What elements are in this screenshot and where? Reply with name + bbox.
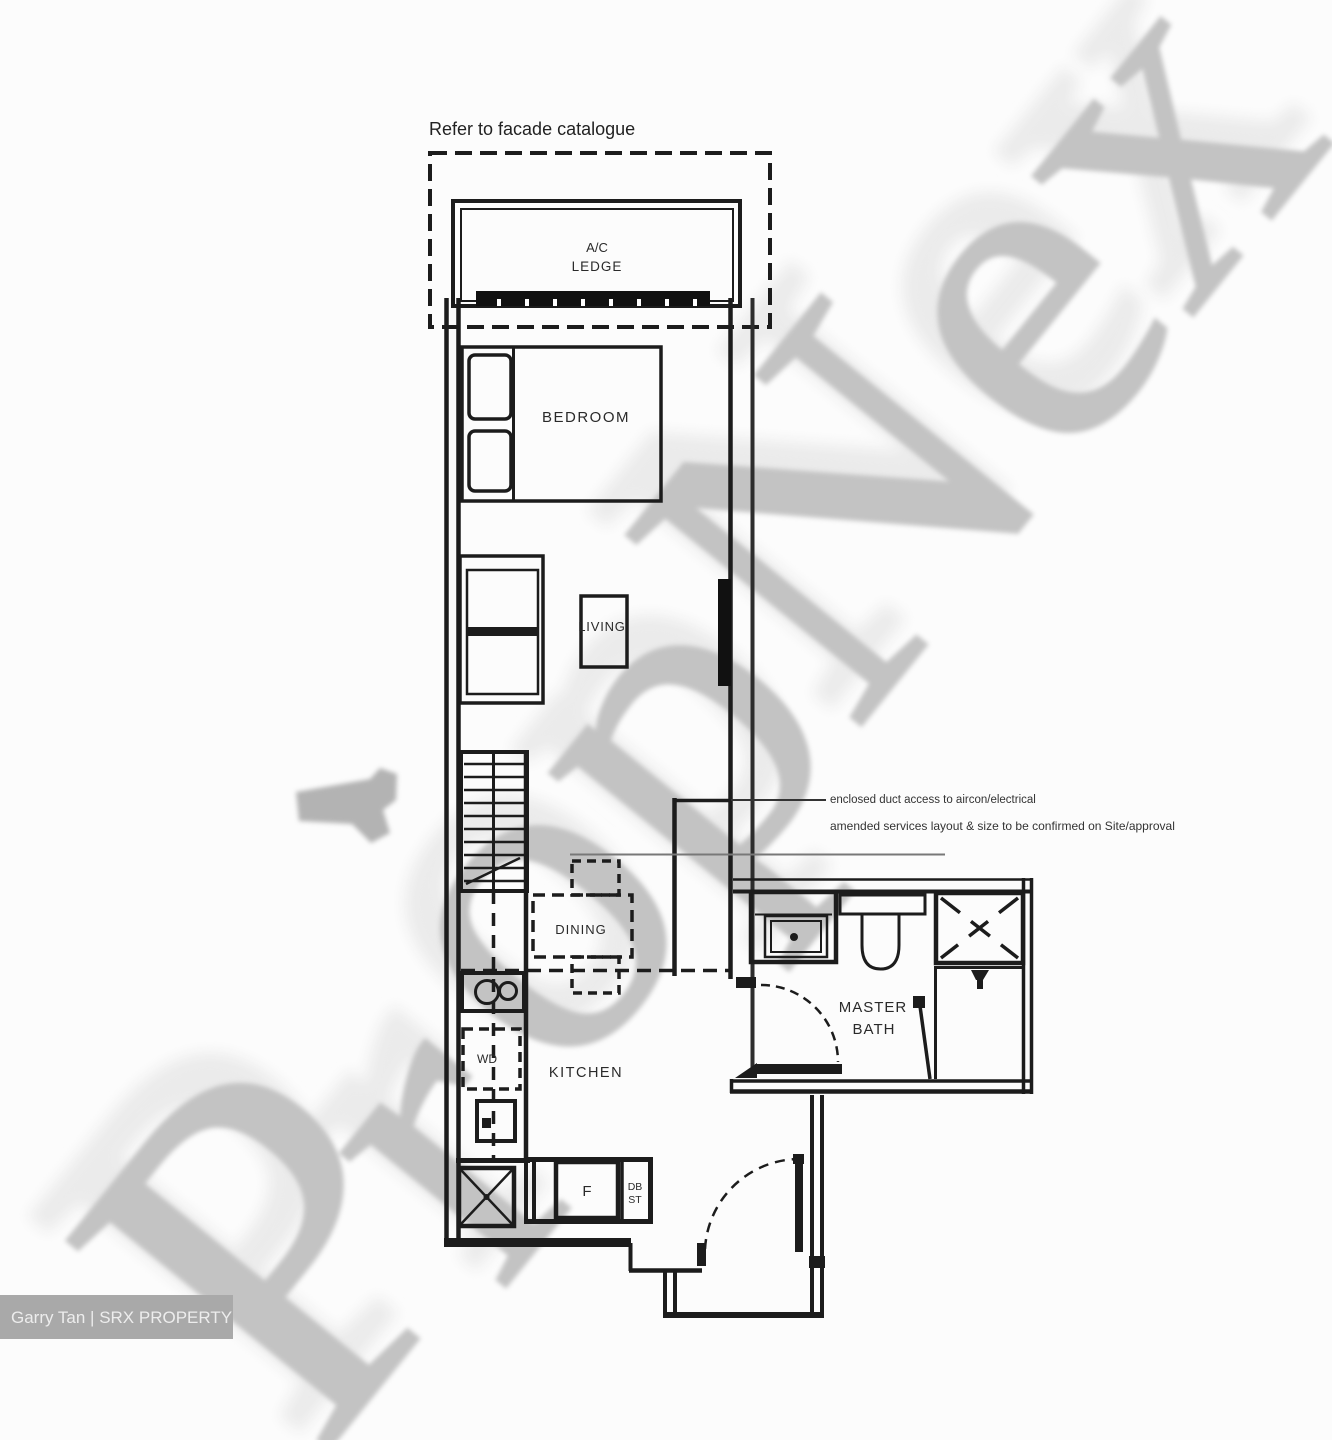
svg-text:WD: WD [477,1052,497,1066]
svg-text:Refer to facade catalogue: Refer to facade catalogue [429,119,635,139]
svg-text:MASTER: MASTER [839,999,908,1016]
svg-text:A/C: A/C [586,240,608,255]
svg-text:KITCHEN: KITCHEN [549,1065,623,1081]
svg-text:enclosed duct access to aircon: enclosed duct access to aircon/electrica… [830,794,1036,806]
svg-text:ST: ST [628,1194,642,1206]
svg-text:F: F [582,1183,591,1200]
svg-text:DINING: DINING [555,922,607,937]
svg-text:DB: DB [628,1181,643,1193]
svg-text:BEDROOM: BEDROOM [542,409,630,426]
svg-text:LIVING: LIVING [578,619,625,634]
svg-text:amended services layout & size: amended services layout & size to be con… [830,819,1175,833]
svg-text:BATH: BATH [853,1021,896,1038]
svg-text:Garry Tan | SRX PROPERTY: Garry Tan | SRX PROPERTY [11,1308,232,1327]
svg-text:LEDGE: LEDGE [572,259,623,274]
